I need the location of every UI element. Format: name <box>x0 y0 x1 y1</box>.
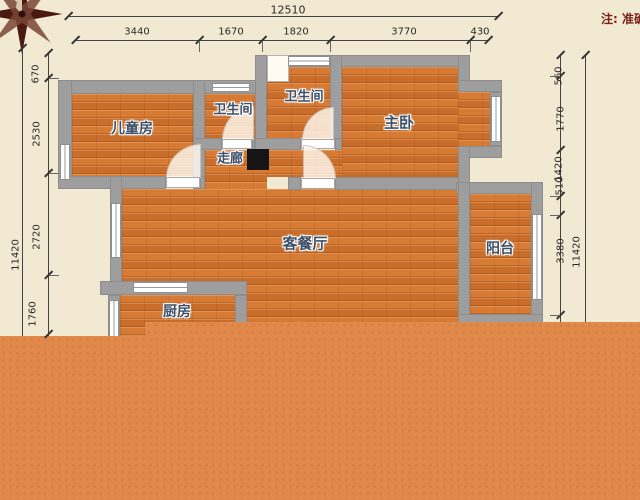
dimension-label: 1760 <box>28 301 39 326</box>
dimension-line <box>48 53 49 336</box>
window <box>532 214 542 300</box>
dimension-extension-line <box>470 41 471 52</box>
window <box>109 300 119 338</box>
dimension-label: 12510 <box>271 4 306 17</box>
dimension-label: 11420 <box>572 236 583 268</box>
window <box>111 203 121 258</box>
door-leaf <box>301 178 335 189</box>
entry-opening <box>267 55 289 82</box>
window <box>133 282 188 293</box>
wall <box>288 177 301 190</box>
room-label-bathroom-2: 卫生间 <box>284 86 323 105</box>
window <box>212 83 250 92</box>
dimension-extension-line <box>330 41 331 52</box>
dimension-label: 2720 <box>32 224 43 249</box>
room-label-master-bedroom: 主卧 <box>384 112 414 133</box>
window <box>491 96 501 142</box>
window <box>60 144 70 180</box>
floor-master-bay <box>458 92 491 146</box>
dimension-label: 2530 <box>32 121 43 146</box>
room-label-bathroom-1: 卫生间 <box>213 99 252 118</box>
dimension-extension-line <box>550 315 560 316</box>
wall <box>458 182 470 326</box>
orange-overlay <box>0 336 640 500</box>
dimension-extension-line <box>49 173 59 174</box>
dimension-label: 670 <box>31 64 42 83</box>
wall <box>335 138 342 150</box>
dimension-label: 1770 <box>556 106 567 131</box>
note-text: 注: 准确 <box>601 10 640 28</box>
dimension-label: 3380 <box>556 238 567 263</box>
floorplan-canvas: 注: 准确 <box>0 0 640 500</box>
dimension-label: 11420 <box>11 239 22 271</box>
dimension-extension-line <box>550 215 560 216</box>
room-label-living-dining: 客餐厅 <box>282 233 327 254</box>
dimension-extension-line <box>550 196 560 197</box>
room-label-children-room: 儿童房 <box>111 118 153 138</box>
window <box>288 56 330 66</box>
dimension-label: 3770 <box>391 27 416 38</box>
dimension-line <box>75 40 488 41</box>
door-leaf <box>166 177 200 188</box>
dimension-line <box>22 48 23 336</box>
dimension-label: 1820 <box>283 27 308 38</box>
dimension-label: 1670 <box>218 27 243 38</box>
room-label-kitchen: 厨房 <box>163 301 191 321</box>
dimension-line <box>585 55 586 330</box>
dimension-label: 3440 <box>124 27 149 38</box>
dimension-extension-line <box>550 76 560 77</box>
dimension-extension-line <box>262 41 263 52</box>
dimension-extension-line <box>49 78 59 79</box>
compass-rose-icon <box>0 0 66 58</box>
room-label-balcony: 阳台 <box>486 238 514 258</box>
dimension-extension-line <box>199 41 200 52</box>
dimension-extension-line <box>49 275 59 276</box>
structural-column <box>247 149 269 170</box>
wall <box>458 80 502 92</box>
wall <box>255 55 267 150</box>
room-label-corridor: 走廊 <box>217 148 243 167</box>
wall <box>335 177 470 190</box>
